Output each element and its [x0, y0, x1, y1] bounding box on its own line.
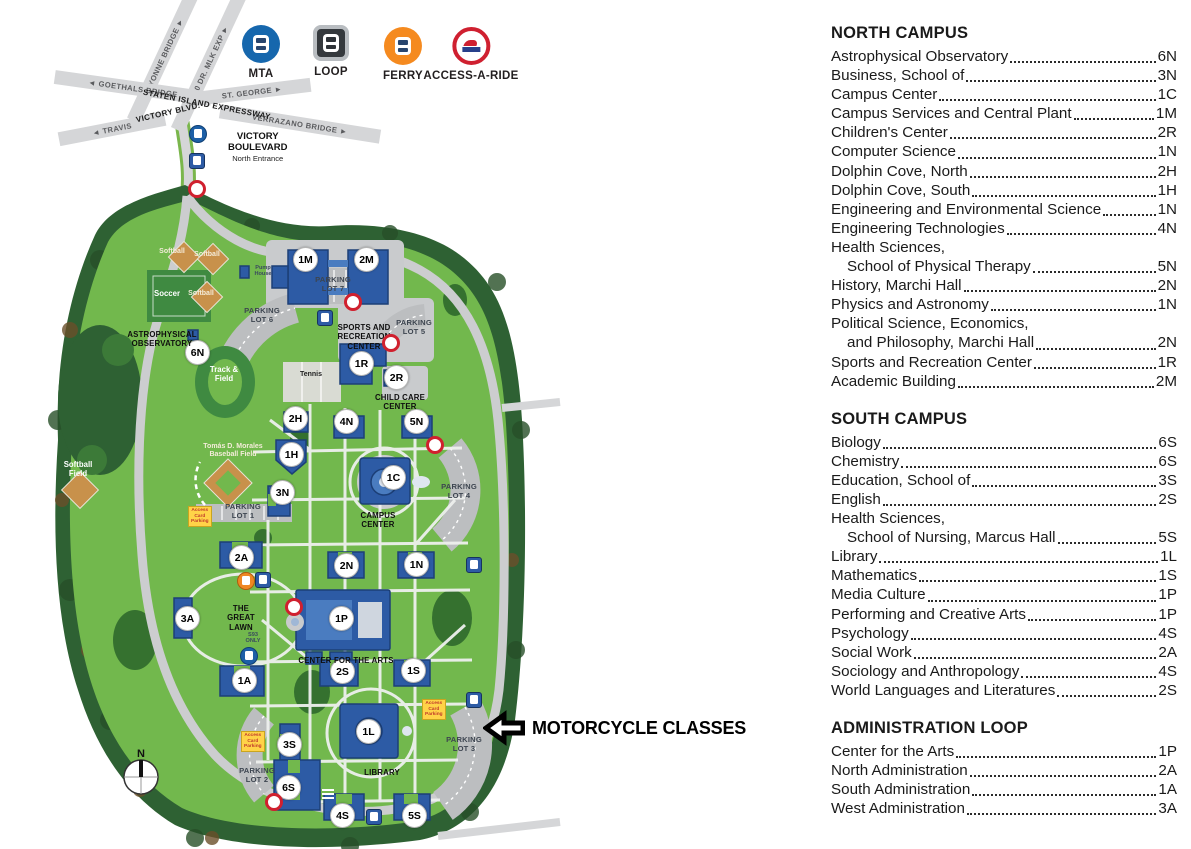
dot-leader [1058, 542, 1157, 544]
directory-entry: English2S [831, 490, 1177, 509]
map-label: Softball [159, 248, 185, 256]
directory-entry: Children's Center2R [831, 123, 1177, 142]
directory-entry-name: Astrophysical Observatory [831, 47, 1008, 66]
building-marker-3S: 3S [277, 732, 302, 757]
shuttle-stop-marker [426, 436, 444, 454]
dot-leader [1010, 61, 1155, 63]
bus-glyph [395, 37, 411, 55]
bus-stop-icon [189, 153, 205, 169]
directory-entry-code: 2H [1158, 162, 1177, 181]
map-label: PARKING LOT 3 [446, 736, 482, 753]
map-label: PARKING LOT 4 [441, 483, 477, 500]
map-label: Tomás D. Morales Baseball Field [203, 443, 262, 459]
directory-entry-name: Media Culture [831, 585, 926, 604]
bus-stop-icon [366, 809, 382, 825]
directory-entry-name: Computer Science [831, 142, 956, 161]
directory-entry: Astrophysical Observatory6N [831, 47, 1177, 66]
dot-leader [1028, 619, 1156, 621]
dot-leader [958, 157, 1156, 159]
directory-entry: Dolphin Cove, South1H [831, 181, 1177, 200]
directory-entry: Psychology4S [831, 624, 1177, 643]
directory-entry-code: 4S [1158, 624, 1177, 643]
directory-section: ADMINISTRATION LOOPCenter for the Arts1P… [831, 719, 1177, 818]
map-label: PARKING LOT 2 [239, 767, 275, 784]
directory-section-title: NORTH CAMPUS [831, 24, 1177, 43]
directory-entry-name: Academic Building [831, 372, 956, 391]
building-marker-3N: 3N [270, 480, 295, 505]
directory-entry-name: Engineering Technologies [831, 219, 1005, 238]
bus-stop-icon [466, 557, 482, 573]
map-label: Pump House [254, 265, 271, 278]
transit-item-loop: LOOP [313, 25, 349, 78]
directory-entry-name: Political Science, Economics, [831, 314, 1177, 333]
directory-entry: South Administration1A [831, 780, 1177, 799]
directory-entry-name: Chemistry [831, 452, 899, 471]
building-marker-1L: 1L [356, 719, 381, 744]
building-marker-1C: 1C [381, 465, 406, 490]
building-marker-1M: 1M [293, 247, 318, 272]
dot-leader [972, 485, 1156, 487]
directory-entry-code: 1L [1160, 547, 1177, 566]
directory-entry-code: 4S [1158, 662, 1177, 681]
directory-entry: Campus Services and Central Plant1M [831, 104, 1177, 123]
shuttle-stop-marker [382, 334, 400, 352]
shuttle-stop-marker [285, 598, 303, 616]
directory-entry: Sociology and Anthropology4S [831, 662, 1177, 681]
transit-item-label: FERRY [383, 70, 423, 82]
directory-entry-code: 4N [1158, 219, 1177, 238]
map-label: Softball Field [64, 461, 93, 479]
directory-entry-name2: School of Nursing, Marcus Hall [831, 528, 1056, 547]
building-marker-4N: 4N [334, 409, 359, 434]
shuttle-stop-marker [344, 293, 362, 311]
directory-entry: Education, School of3S [831, 471, 1177, 490]
directory-entry-code: 2M [1156, 372, 1177, 391]
building-marker-1N: 1N [404, 552, 429, 577]
map-label: CAMPUS CENTER [361, 511, 396, 530]
directory-entry: School of Physical Therapy5N [831, 257, 1177, 276]
building-marker-2R: 2R [384, 365, 409, 390]
dot-leader [972, 195, 1155, 197]
directory-entry: History, Marchi Hall2N [831, 276, 1177, 295]
transit-item-aar: ACCESS-A-RIDE [423, 27, 518, 82]
directory-entry-code: 3N [1158, 66, 1177, 85]
directory-entry-name: Children's Center [831, 123, 948, 142]
transit-item-ferry: FERRY [383, 27, 423, 82]
directory-entry: West Administration3A [831, 799, 1177, 818]
directory-entry-code: 2R [1158, 123, 1177, 142]
dot-leader [956, 756, 1156, 758]
dot-leader [879, 561, 1158, 563]
dot-leader [964, 290, 1156, 292]
dot-leader [901, 466, 1156, 468]
dot-leader [991, 309, 1156, 311]
aar-icon [452, 27, 490, 65]
directory-entry-code: 2N [1158, 276, 1177, 295]
transit-item-mta: MTA [242, 25, 280, 80]
building-marker-1R: 1R [349, 351, 374, 376]
map-label: CHILD CARE CENTER [375, 393, 425, 412]
compass-rose-graphic [124, 760, 158, 794]
entrance-line3: North Entrance [228, 154, 287, 163]
directory-entry: Center for the Arts1P [831, 742, 1177, 761]
directory-entry-name: Health Sciences, [831, 509, 1177, 528]
directory-entry-code: 1H [1158, 181, 1177, 200]
directory-entry-name: Social Work [831, 643, 912, 662]
map-label: Tennis [300, 371, 322, 378]
directory-entry-code: 6S [1158, 433, 1177, 452]
map-label: PARKING LOT 5 [396, 319, 432, 336]
building-marker-1S: 1S [401, 658, 426, 683]
directory-entry-code: 5S [1158, 528, 1177, 547]
directory-entry-code: 2S [1158, 681, 1177, 700]
access-card-parking-sign: Access Card Parking [422, 699, 446, 720]
directory-entry: Chemistry6S [831, 452, 1177, 471]
directory-entry: Academic Building2M [831, 372, 1177, 391]
map-label: ASTROPHYSICAL OBSERVATORY [127, 330, 196, 349]
dot-leader [966, 80, 1155, 82]
directory-entry: Engineering and Environmental Science1N [831, 200, 1177, 219]
dot-leader [1036, 348, 1155, 350]
directory-entry-code: 1P [1158, 742, 1177, 761]
directory-entry-code: 1A [1158, 780, 1177, 799]
directory-entry: World Languages and Literatures2S [831, 681, 1177, 700]
building-marker-5N: 5N [404, 409, 429, 434]
map-label: PARKING LOT 6 [244, 307, 280, 324]
map-label: CENTER FOR THE ARTS [298, 656, 393, 665]
directory-entry-name: West Administration [831, 799, 965, 818]
map-label: S93 ONLY [245, 632, 260, 645]
dot-leader [970, 176, 1156, 178]
building-directory: NORTH CAMPUSAstrophysical Observatory6NB… [831, 24, 1177, 837]
dot-leader [919, 580, 1156, 582]
access-a-ride-van-glyph [462, 40, 480, 52]
directory-entry-name: History, Marchi Hall [831, 276, 962, 295]
directory-section: SOUTH CAMPUSBiology6SChemistry6SEducatio… [831, 410, 1177, 700]
dot-leader [970, 775, 1157, 777]
directory-entry-name: Center for the Arts [831, 742, 954, 761]
access-card-parking-sign: Access Card Parking [188, 506, 212, 527]
dot-leader [883, 447, 1157, 449]
bus-stop-icon [466, 692, 482, 708]
directory-entry-name: Campus Center [831, 85, 937, 104]
directory-entry-code: 1N [1158, 295, 1177, 314]
map-label: THE GREAT LAWN [227, 604, 255, 632]
bus-stop-icon [317, 310, 333, 326]
bus-stop-icon [255, 572, 271, 588]
dot-leader [967, 813, 1156, 815]
entrance-line2: BOULEVARD [228, 142, 287, 153]
directory-entry: Computer Science1N [831, 142, 1177, 161]
directory-entry-name: South Administration [831, 780, 970, 799]
campus-map-page: BAYONNE BRIDGE ►440 DR. MLK EXP ►◄ GOETH… [0, 0, 1191, 849]
directory-entry: Engineering Technologies4N [831, 219, 1177, 238]
map-label: Softball [188, 290, 214, 298]
dot-leader [939, 99, 1155, 101]
directory-entry-code: 2A [1158, 761, 1177, 780]
dot-leader [914, 657, 1157, 659]
directory-entry: Library1L [831, 547, 1177, 566]
building-marker-2N: 2N [334, 553, 359, 578]
entrance-line1: VICTORY [228, 131, 287, 142]
dot-leader [958, 386, 1154, 388]
transit-item-label: ACCESS-A-RIDE [423, 70, 518, 82]
building-marker-3A: 3A [175, 606, 200, 631]
directory-entry-name: English [831, 490, 881, 509]
mta-icon [242, 25, 280, 63]
directory-entry: North Administration2A [831, 761, 1177, 780]
building-marker-1H: 1H [279, 442, 304, 467]
directory-entry-name: Library [831, 547, 877, 566]
directory-entry-name: Education, School of [831, 471, 970, 490]
dot-leader [1074, 118, 1154, 120]
building-marker-1P: 1P [329, 606, 354, 631]
map-label: Soccer [154, 290, 180, 299]
building-marker-5S: 5S [402, 803, 427, 828]
directory-entry-code: 1S [1158, 566, 1177, 585]
ferry-icon [384, 27, 422, 65]
directory-entry-name: Sports and Recreation Center [831, 353, 1032, 372]
directory-entry-name2: School of Physical Therapy [831, 257, 1031, 276]
dot-leader [1007, 233, 1156, 235]
directory-entry-name: Psychology [831, 624, 909, 643]
directory-entry-name: Business, School of [831, 66, 964, 85]
left-arrow-icon [483, 710, 525, 746]
directory-entry-code: 1P [1158, 605, 1177, 624]
directory-entry: Campus Center1C [831, 85, 1177, 104]
access-card-parking-sign: Access Card Parking [241, 731, 265, 752]
loop-icon [313, 25, 349, 61]
directory-entry-code: 1M [1156, 104, 1177, 123]
directory-entry: Media Culture1P [831, 585, 1177, 604]
directory-entry-name: Performing and Creative Arts [831, 605, 1026, 624]
directory-entry-code: 3A [1158, 799, 1177, 818]
transit-item-label: MTA [249, 68, 274, 80]
building-marker-2M: 2M [354, 247, 379, 272]
map-label: PARKING LOT 1 [225, 503, 261, 520]
dot-leader [911, 638, 1157, 640]
bus-glyph [323, 34, 339, 52]
directory-section: NORTH CAMPUSAstrophysical Observatory6NB… [831, 24, 1177, 391]
directory-entry-name: Engineering and Environmental Science [831, 200, 1101, 219]
directory-entry-code: 1N [1158, 142, 1177, 161]
shuttle-stop-marker [265, 793, 283, 811]
bus-stop-icon [237, 572, 255, 590]
dot-leader [972, 794, 1156, 796]
directory-entry-code: 5N [1158, 257, 1177, 276]
north-entrance-label: VICTORY BOULEVARD North Entrance [228, 131, 287, 163]
directory-entry-code: 1C [1158, 85, 1177, 104]
map-label: Softball [194, 251, 220, 259]
directory-entry-name: Dolphin Cove, South [831, 181, 970, 200]
directory-section-title: ADMINISTRATION LOOP [831, 719, 1177, 738]
bus-stop-icon [240, 647, 258, 665]
compass-n: N [137, 748, 145, 760]
directory-entry-name: Mathematics [831, 566, 917, 585]
directory-entry-name: Health Sciences, [831, 238, 1177, 257]
directory-entry-name: Dolphin Cove, North [831, 162, 968, 181]
bus-stop-icon [189, 125, 207, 143]
dot-leader [1033, 271, 1156, 273]
directory-entry-name2: and Philosophy, Marchi Hall [831, 333, 1034, 352]
map-label: Track & Field [210, 366, 238, 384]
directory-entry-code: 6S [1158, 452, 1177, 471]
directory-entry: Performing and Creative Arts1P [831, 605, 1177, 624]
transit-item-label: LOOP [314, 66, 348, 78]
directory-entry-code: 1N [1158, 200, 1177, 219]
compass-label: N [118, 744, 164, 762]
directory-entry-code: 2A [1158, 643, 1177, 662]
directory-section-title: SOUTH CAMPUS [831, 410, 1177, 429]
directory-entry-name: World Languages and Literatures [831, 681, 1055, 700]
dot-leader [1034, 367, 1156, 369]
shuttle-stop-marker [188, 180, 206, 198]
dot-leader [1021, 676, 1156, 678]
directory-entry-code: 1R [1158, 353, 1177, 372]
directory-entry-name: Physics and Astronomy [831, 295, 989, 314]
directory-entry: Biology6S [831, 433, 1177, 452]
directory-entry-name: Campus Services and Central Plant [831, 104, 1072, 123]
dot-leader [928, 600, 1157, 602]
building-marker-4S: 4S [330, 803, 355, 828]
dot-leader [1057, 695, 1156, 697]
directory-entry-code: 6N [1158, 47, 1177, 66]
directory-entry-name: Sociology and Anthropology [831, 662, 1019, 681]
directory-entry: Physics and Astronomy1N [831, 295, 1177, 314]
map-label: LIBRARY [364, 768, 400, 777]
building-marker-2A: 2A [229, 545, 254, 570]
building-marker-1A: 1A [232, 668, 257, 693]
dot-leader [950, 137, 1156, 139]
annotation-text: MOTORCYCLE CLASSES [532, 718, 746, 739]
map-label: PARKING LOT 7 [315, 276, 351, 293]
directory-entry: School of Nursing, Marcus Hall5S [831, 528, 1177, 547]
directory-entry-code: 3S [1158, 471, 1177, 490]
motorcycle-classes-annotation: MOTORCYCLE CLASSES [483, 710, 746, 746]
building-marker-2H: 2H [283, 406, 308, 431]
directory-entry: Mathematics1S [831, 566, 1177, 585]
dot-leader [1103, 214, 1155, 216]
directory-entry: Business, School of3N [831, 66, 1177, 85]
directory-entry: Dolphin Cove, North2H [831, 162, 1177, 181]
directory-entry-name: North Administration [831, 761, 968, 780]
directory-entry-code: 2N [1158, 333, 1177, 352]
dot-leader [883, 504, 1157, 506]
bus-glyph [253, 35, 269, 53]
directory-entry: and Philosophy, Marchi Hall2N [831, 333, 1177, 352]
directory-entry: Social Work2A [831, 643, 1177, 662]
directory-entry-code: 1P [1158, 585, 1177, 604]
directory-entry: Sports and Recreation Center1R [831, 353, 1177, 372]
directory-entry-name: Biology [831, 433, 881, 452]
directory-entry-code: 2S [1158, 490, 1177, 509]
